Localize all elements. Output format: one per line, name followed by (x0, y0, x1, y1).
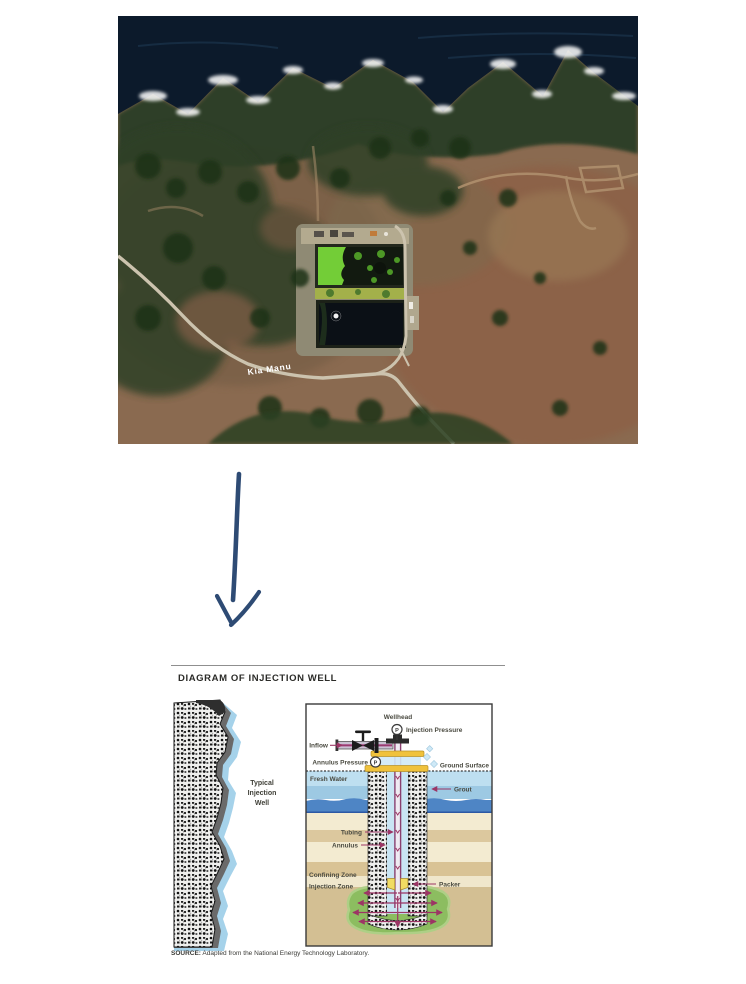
wellhead-label: Wellhead (384, 714, 412, 721)
down-arrow (205, 465, 275, 635)
algae-patch (318, 247, 346, 285)
parking-area (406, 296, 419, 330)
vehicle (409, 302, 413, 309)
inflow-label: Inflow (309, 743, 329, 750)
document-page: Kia Manu DIAGRAM OF INJECTION WELL (0, 0, 746, 984)
grout-label: Grout (454, 786, 473, 793)
vehicle (410, 316, 414, 323)
annulus-label: Annulus (332, 842, 358, 849)
packer-label: Packer (439, 881, 461, 888)
pond-dark-patch (374, 262, 386, 274)
gauge-letter: P (374, 760, 378, 766)
fresh-water-label: Fresh Water (310, 776, 348, 783)
section-divider (171, 665, 505, 666)
annulus-pressure-label: Annulus Pressure (312, 759, 368, 766)
grout-column-right (408, 770, 427, 916)
source-prefix: SOURCE: (171, 950, 201, 957)
satellite-image: Kia Manu (118, 16, 638, 444)
down-arrow-strokes (217, 474, 259, 625)
source-text: Adapted from the National Energy Technol… (201, 950, 369, 957)
gauge-letter: P (395, 728, 399, 734)
typical-well-graphic (171, 698, 256, 953)
lower-pond (319, 303, 403, 345)
typical-injection-well-label: Typical Injection Well (228, 779, 296, 809)
injection-pressure-label: Injection Pressure (406, 727, 463, 734)
injection-well-cross-section: P P Wellhead Injection Pressure Inflow A… (305, 703, 493, 947)
grout-column-left (368, 770, 387, 916)
diagram-title: DIAGRAM OF INJECTION WELL (178, 673, 337, 684)
flange-upper (371, 751, 424, 757)
injection-zone-label: Injection Zone (309, 884, 353, 891)
tubing-label: Tubing (341, 829, 362, 836)
aerator-dot (334, 314, 339, 319)
source-attribution: SOURCE: Adapted from the National Energy… (171, 950, 369, 957)
treatment-facility (296, 224, 419, 356)
ground-surface-label: Ground Surface (440, 763, 490, 770)
confining-zone-label: Confining Zone (309, 872, 357, 879)
